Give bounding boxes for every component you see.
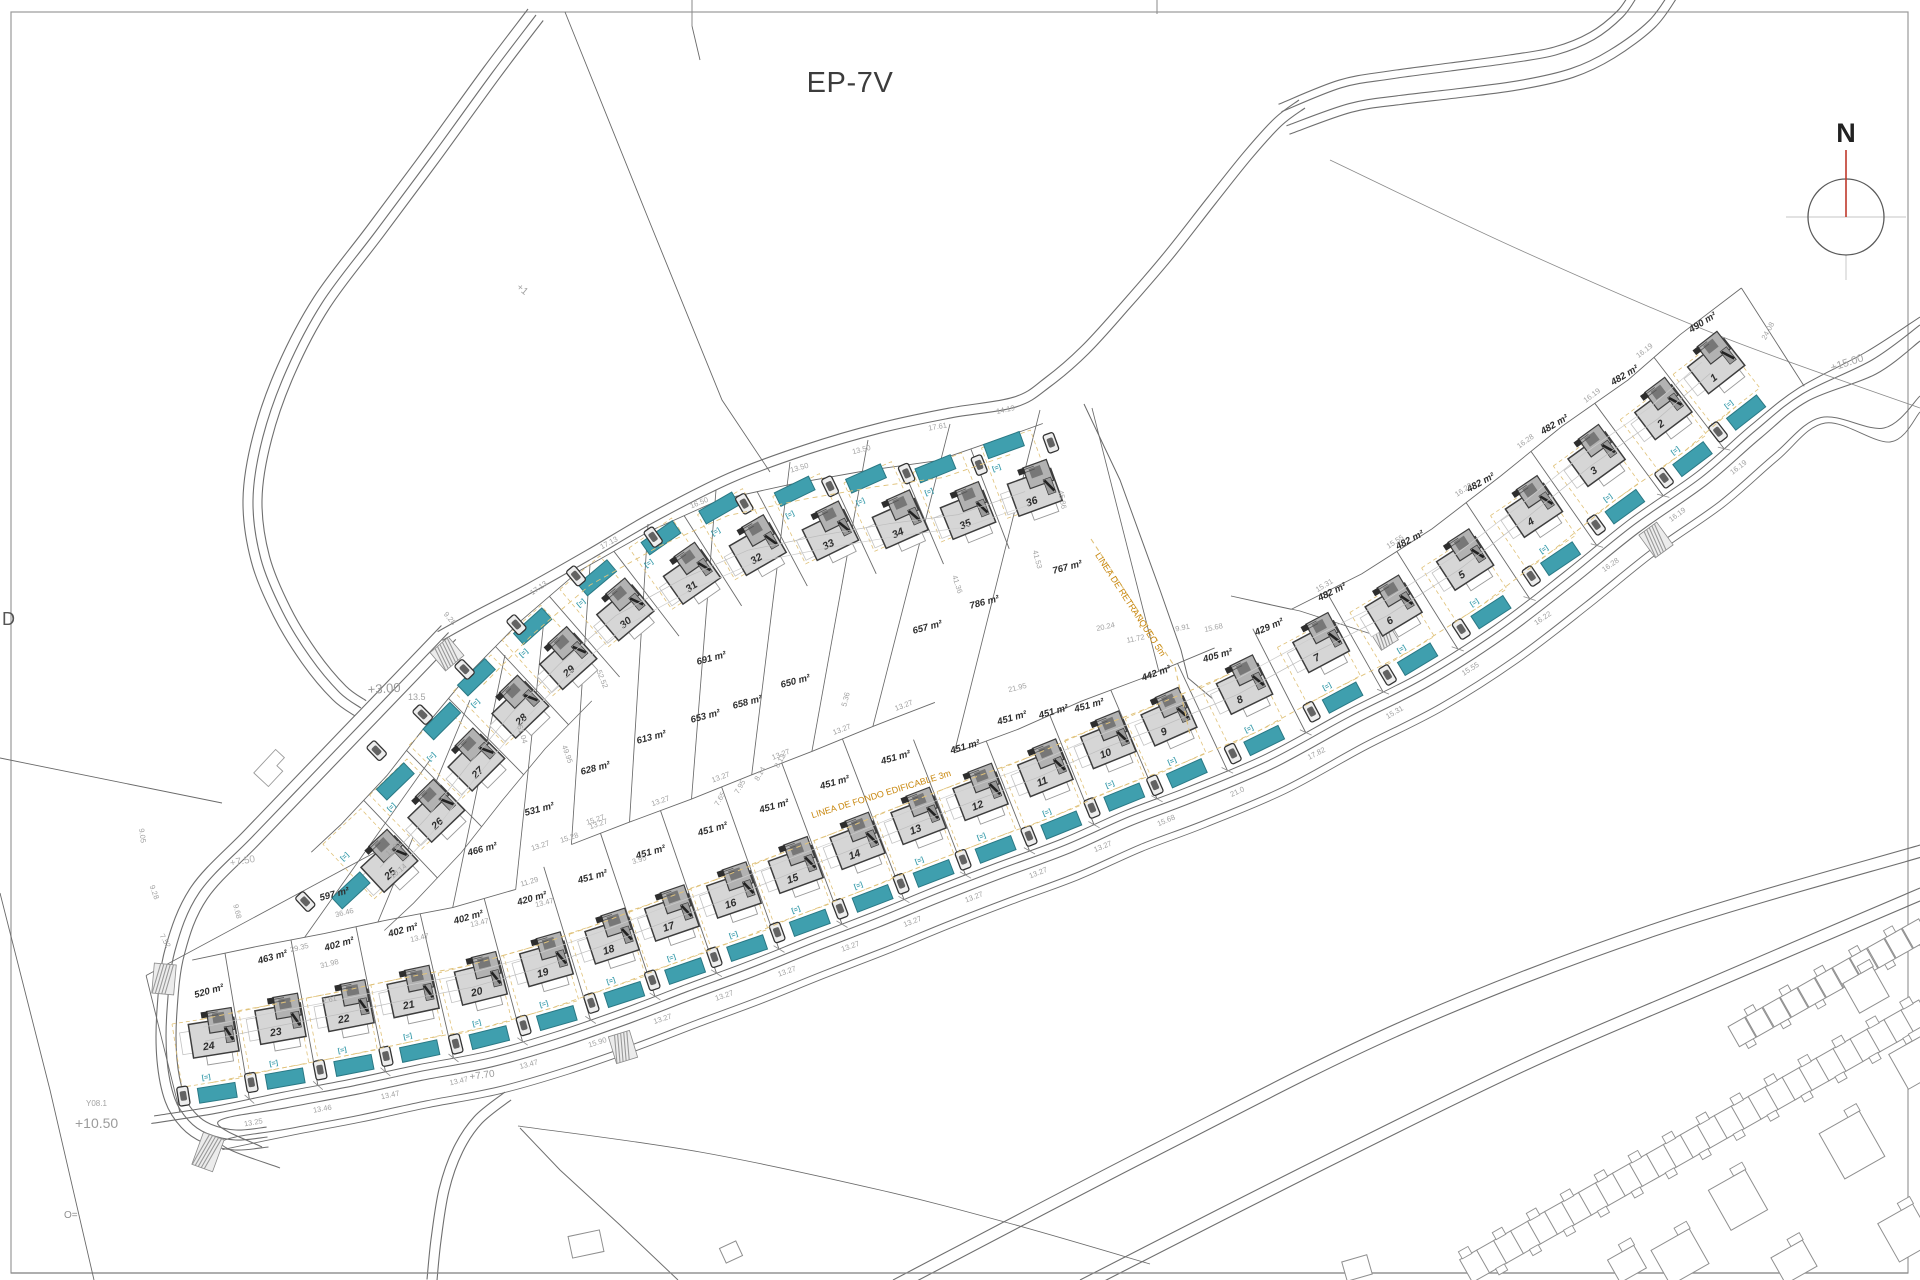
svg-text:D: D (2, 609, 15, 629)
svg-text:Y08.1: Y08.1 (86, 1099, 107, 1108)
svg-text:13.5: 13.5 (408, 692, 426, 702)
svg-text:EP-7V: EP-7V (807, 67, 894, 99)
svg-text:24: 24 (201, 1040, 216, 1054)
svg-text:[=]: [=] (201, 1074, 211, 1082)
svg-text:+10.50: +10.50 (75, 1115, 118, 1131)
svg-text:+3.00: +3.00 (367, 680, 401, 697)
svg-text:N: N (1836, 118, 1856, 148)
svg-text:[=]: [=] (269, 1060, 279, 1068)
svg-text:O=: O= (64, 1210, 78, 1221)
